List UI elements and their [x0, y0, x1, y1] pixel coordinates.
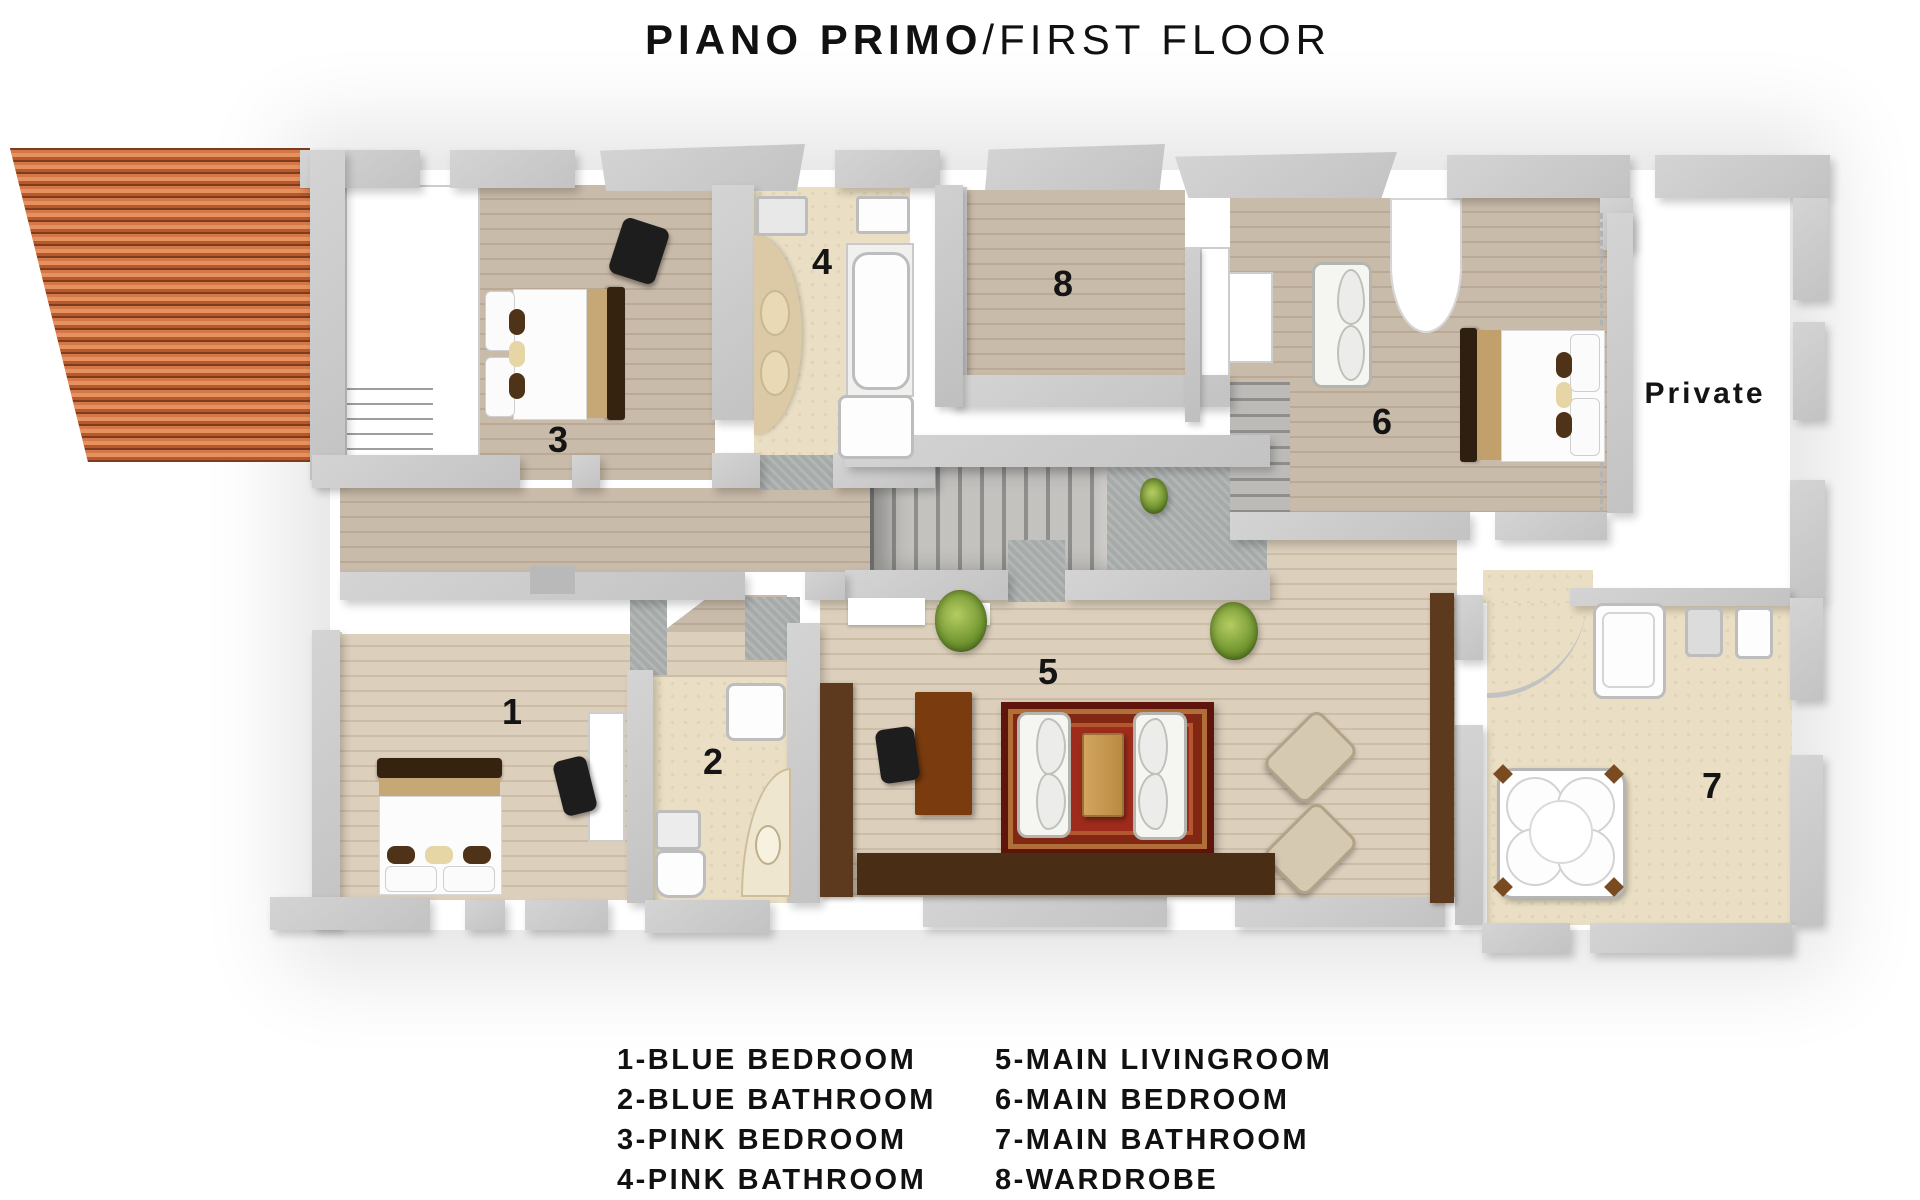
threshold-livingroom [1008, 540, 1065, 602]
shower-tray-inner [1602, 612, 1655, 688]
threshold-hall [630, 600, 667, 675]
wall-segment [712, 185, 754, 420]
legend-item-4: 4-PINK BATHROOM [617, 1160, 936, 1200]
legend-item-1: 1-BLUE BEDROOM [617, 1040, 936, 1080]
room-label-2: 2 [703, 741, 723, 783]
toilet-room2 [655, 850, 706, 898]
wall-segment [1655, 155, 1830, 198]
sink-room7 [1685, 607, 1723, 657]
plant [935, 590, 987, 652]
wall-segment [312, 630, 340, 927]
blue-bedroom-bed [377, 758, 502, 895]
bookcase-left [820, 683, 853, 897]
desk-room1 [588, 712, 625, 842]
room-label-5: 5 [1038, 651, 1058, 693]
wall-segment [835, 150, 940, 188]
room-label-7: 7 [1702, 765, 1722, 807]
bed-pillow [443, 866, 495, 892]
room-label-8: 8 [1053, 263, 1073, 305]
sink-room2 [655, 810, 701, 850]
wall-segment [1482, 923, 1570, 953]
bed-pillow [1570, 398, 1600, 456]
bathtub-room4 [852, 252, 910, 390]
bed-pillow [1570, 334, 1600, 392]
wall-segment [627, 670, 653, 903]
wall-segment [787, 623, 820, 903]
threshold-bath4 [760, 455, 833, 490]
wall-segment [270, 897, 430, 930]
sofa-cushion [1036, 773, 1066, 830]
title-bold: PIANO PRIMO [645, 16, 982, 63]
legend-item-7: 7-MAIN BATHROOM [995, 1120, 1332, 1160]
sideboard-bottom [857, 853, 1275, 895]
accent-pillow [425, 846, 453, 864]
wall-segment [1185, 247, 1200, 422]
jacuzzi-corner-step [1604, 877, 1624, 897]
wall-segment [805, 572, 845, 600]
sofa-cushion [1138, 773, 1168, 830]
loveseat-cushion [1337, 325, 1365, 381]
main-bedroom-bed [1460, 328, 1603, 462]
wall-segment [712, 453, 760, 488]
loveseat-cushion [1337, 269, 1365, 325]
wall-segment [1447, 155, 1630, 198]
cabinet-room4 [856, 196, 910, 234]
wall-segment [1230, 512, 1470, 540]
accent-pillow [1556, 352, 1572, 378]
legend-item-2: 2-BLUE BATHROOM [617, 1080, 936, 1120]
livingroom-floor-upper-right [1267, 540, 1457, 600]
wall-segment [1455, 725, 1483, 925]
wall-segment [312, 455, 520, 488]
window-sill [530, 566, 575, 594]
wall-segment [1790, 598, 1823, 700]
wall-segment [1793, 198, 1828, 300]
accent-pillow [1556, 382, 1572, 408]
roof-tiles [10, 148, 310, 462]
private-label: Private [1644, 377, 1765, 411]
wall-segment [935, 185, 963, 407]
sofa-cushion [1138, 718, 1168, 775]
sofa-cushion [1036, 718, 1066, 775]
wall-segment [1065, 570, 1270, 600]
jacuzzi-tub [1497, 768, 1626, 899]
wall-segment [450, 150, 575, 188]
wall-segment [1607, 213, 1633, 513]
wall-segment [310, 150, 345, 480]
wall-segment [525, 900, 608, 930]
bed-blanket [585, 289, 607, 418]
accent-pillow [1556, 412, 1572, 438]
legend-item-5: 5-MAIN LIVINGROOM [995, 1040, 1332, 1080]
bed-blanket [379, 778, 500, 796]
legend-item-8: 8-WARDROBE [995, 1160, 1332, 1200]
room-label-6: 6 [1372, 401, 1392, 443]
floor-plan-page: PIANO PRIMO/FIRST FLOOR [0, 0, 1920, 1200]
legend-item-6: 6-MAIN BEDROOM [995, 1080, 1332, 1120]
wall-segment [600, 144, 805, 191]
pink-bedroom-bed [483, 287, 625, 420]
accent-pillow [509, 309, 525, 335]
bath-mat-oval [760, 350, 790, 396]
wall-segment [1175, 152, 1397, 198]
tub-oval [755, 825, 781, 865]
bed-footboard [607, 287, 625, 420]
plant-small [1140, 478, 1168, 514]
bed-pillow [385, 866, 437, 892]
wall-segment [1590, 923, 1792, 953]
shower-room7 [1593, 603, 1666, 699]
wall-segment [1793, 322, 1825, 420]
legend-item-3: 3-PINK BEDROOM [617, 1120, 936, 1160]
room-label-3: 3 [548, 419, 568, 461]
bath-mat-oval [760, 290, 790, 336]
title-regular: /FIRST FLOOR [982, 16, 1331, 63]
accent-pillow [509, 373, 525, 399]
shower-room2 [726, 683, 786, 741]
curved-alcove-white [1390, 198, 1462, 333]
wall-segment [572, 455, 600, 488]
wall-segment [1495, 512, 1607, 540]
wall-segment [1455, 595, 1483, 660]
bookcase-right [1430, 593, 1454, 903]
loveseat-room6 [1312, 262, 1372, 388]
accent-pillow [463, 846, 491, 864]
wall-segment [465, 900, 505, 930]
coffee-table [1082, 733, 1124, 817]
sofa-right [1133, 712, 1187, 840]
desk-livingroom [915, 692, 972, 815]
wall-segment [1790, 480, 1825, 600]
door-leaf-white [1228, 272, 1273, 363]
accent-pillow [509, 341, 525, 367]
hallway-floor [340, 488, 870, 572]
room-label-4: 4 [812, 241, 832, 283]
sofa-left [1017, 712, 1071, 838]
sink-room4 [756, 196, 808, 236]
bed-blanket [1477, 330, 1501, 460]
desk-chair-livingroom [874, 726, 920, 785]
room-label-1: 1 [502, 691, 522, 733]
wall-segment [985, 144, 1165, 190]
window-tab [848, 598, 925, 625]
accent-pillow [387, 846, 415, 864]
wall-segment [845, 570, 1008, 600]
wall-segment [645, 900, 770, 933]
wall-segment [1790, 755, 1823, 925]
legend-column-1: 1-BLUE BEDROOM 2-BLUE BATHROOM 3-PINK BE… [617, 1040, 936, 1200]
legend-column-2: 5-MAIN LIVINGROOM 6-MAIN BEDROOM 7-MAIN … [995, 1040, 1332, 1200]
jacuzzi-center [1529, 800, 1593, 864]
sink-room7-b [1735, 607, 1773, 659]
page-title: PIANO PRIMO/FIRST FLOOR [645, 16, 1331, 64]
shower-room4 [838, 395, 914, 459]
wall-segment [923, 897, 1167, 927]
bed-headboard [377, 758, 502, 778]
wall-segment [1235, 897, 1445, 927]
bed-headboard [1460, 328, 1477, 462]
plant [1210, 602, 1258, 660]
